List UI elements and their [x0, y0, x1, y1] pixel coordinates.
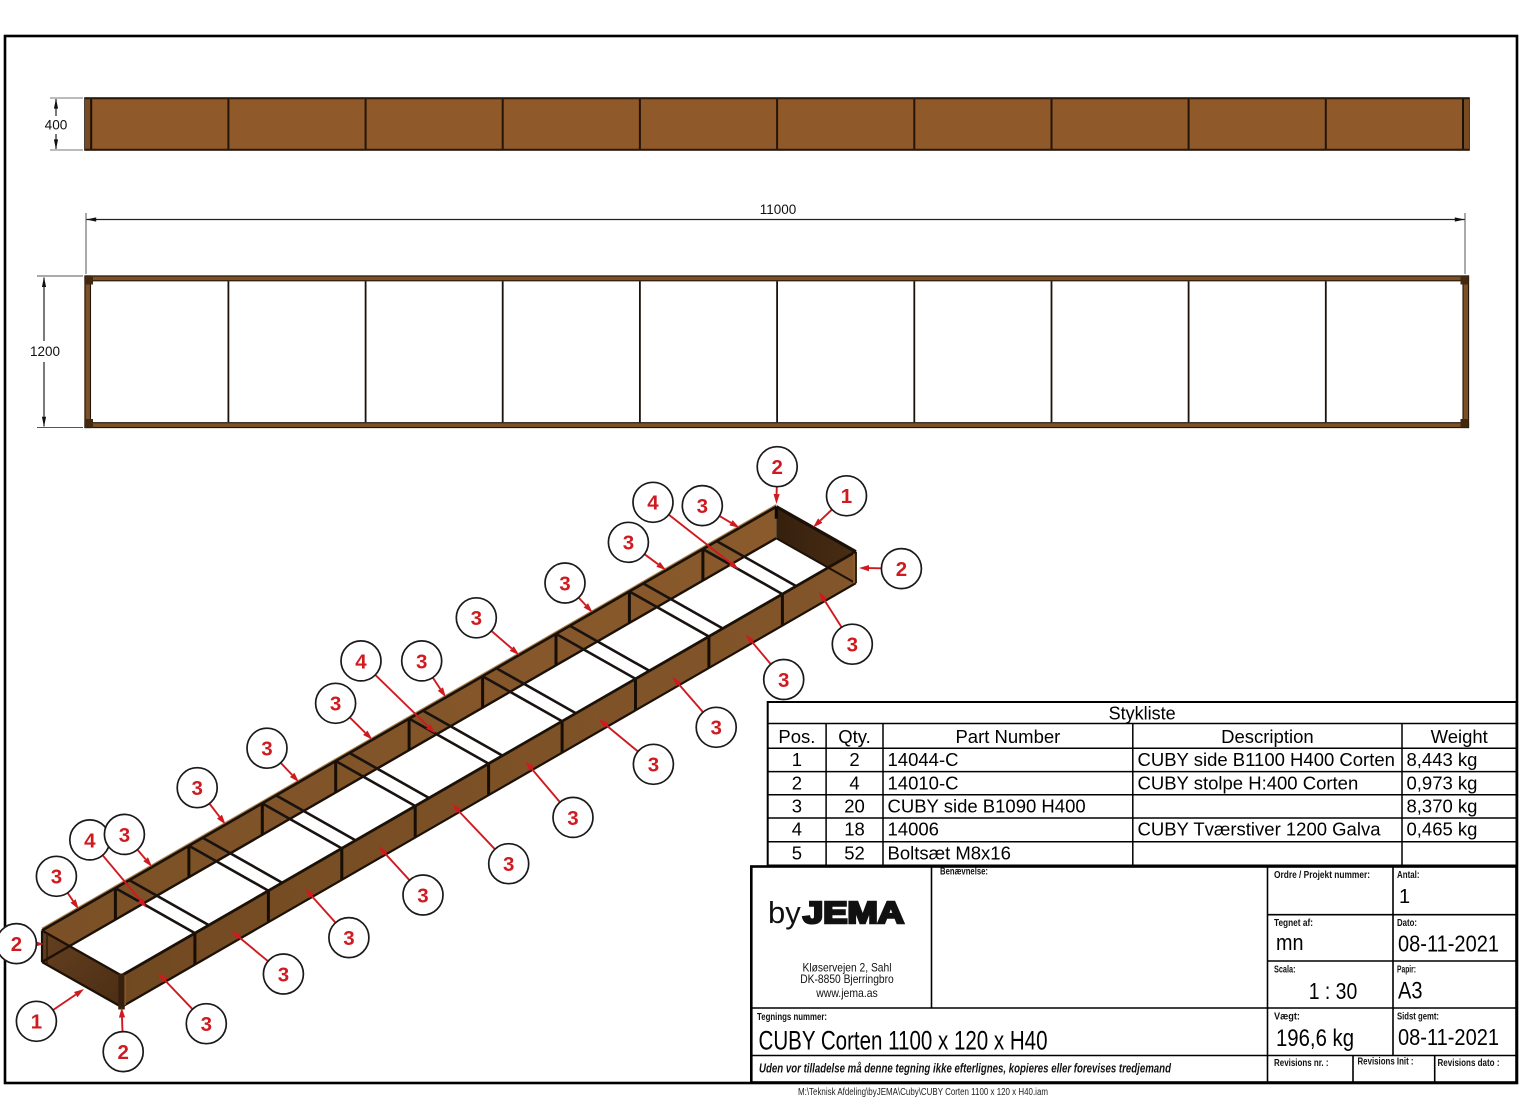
svg-text:3: 3 — [778, 669, 789, 692]
svg-text:3: 3 — [51, 866, 62, 889]
svg-text:3: 3 — [343, 927, 354, 950]
svg-text:3: 3 — [278, 963, 289, 986]
svg-text:CUBY Tværstiver 1200 Galva: CUBY Tværstiver 1200 Galva — [1138, 819, 1382, 840]
svg-text:Dato:: Dato: — [1397, 918, 1417, 929]
svg-text:1: 1 — [31, 1011, 42, 1034]
svg-text:Part Number: Part Number — [955, 726, 1060, 747]
svg-text:3: 3 — [559, 572, 570, 595]
svg-text:Ordre / Projekt nummer:: Ordre / Projekt nummer: — [1274, 870, 1370, 881]
svg-text:2: 2 — [11, 933, 22, 956]
svg-text:3: 3 — [416, 650, 427, 673]
svg-text:3: 3 — [710, 717, 721, 740]
svg-text:08-11-2021: 08-11-2021 — [1398, 931, 1499, 957]
svg-text:Qty.: Qty. — [838, 726, 871, 747]
svg-text:2: 2 — [896, 558, 907, 581]
svg-text:Revisions dato :: Revisions dato : — [1438, 1058, 1500, 1069]
svg-text:Vægt:: Vægt: — [1274, 1012, 1300, 1023]
svg-text:1: 1 — [1399, 886, 1410, 908]
svg-text:1: 1 — [792, 749, 802, 770]
svg-text:3: 3 — [119, 824, 130, 847]
svg-text:8,370 kg: 8,370 kg — [1407, 796, 1478, 817]
svg-text:2: 2 — [792, 772, 802, 793]
svg-text:5: 5 — [792, 843, 802, 864]
svg-text:0,973 kg: 0,973 kg — [1407, 772, 1478, 793]
svg-text:JEMA: JEMA — [803, 895, 904, 930]
svg-text:14006: 14006 — [888, 819, 939, 840]
svg-text:CUBY side B1100 H400 Corten: CUBY side B1100 H400 Corten — [1138, 749, 1395, 770]
svg-text:3: 3 — [261, 738, 272, 761]
svg-text:Uden vor tilladelse må denne t: Uden vor tilladelse må denne tegning ikk… — [759, 1061, 1172, 1076]
svg-text:Stykliste: Stykliste — [1109, 704, 1176, 724]
svg-text:1200: 1200 — [30, 344, 60, 360]
svg-text:Revisions Init :: Revisions Init : — [1358, 1057, 1414, 1068]
svg-text:20: 20 — [844, 796, 865, 817]
svg-text:CUBY side B1090 H400: CUBY side B1090 H400 — [888, 796, 1086, 817]
svg-text:4: 4 — [647, 492, 659, 515]
svg-text:Benævnelse:: Benævnelse: — [940, 867, 988, 878]
svg-text:2: 2 — [849, 749, 859, 770]
svg-text:3: 3 — [503, 853, 514, 876]
svg-text:3: 3 — [623, 532, 634, 555]
svg-text:4: 4 — [355, 650, 367, 673]
svg-text:A3: A3 — [1398, 978, 1423, 1005]
svg-text:Scala:: Scala: — [1274, 965, 1296, 976]
svg-text:CUBY stolpe H:400 Corten: CUBY stolpe H:400 Corten — [1138, 772, 1359, 793]
svg-text:3: 3 — [648, 754, 659, 777]
svg-text:3: 3 — [417, 884, 428, 907]
svg-text:4: 4 — [792, 819, 802, 840]
svg-text:by: by — [768, 895, 801, 930]
svg-text:DK-8850 Bjerringbro: DK-8850 Bjerringbro — [800, 972, 894, 986]
svg-text:3: 3 — [471, 607, 482, 630]
svg-text:3: 3 — [201, 1013, 212, 1036]
svg-text:08-11-2021: 08-11-2021 — [1398, 1024, 1499, 1050]
svg-text:Boltsæt M8x16: Boltsæt M8x16 — [888, 843, 1011, 864]
svg-text:3: 3 — [191, 777, 202, 800]
svg-text:0,465 kg: 0,465 kg — [1407, 819, 1478, 840]
svg-text:1: 1 — [841, 485, 852, 508]
svg-text:Tegnet af:: Tegnet af: — [1274, 918, 1313, 929]
svg-text:3: 3 — [697, 495, 708, 518]
svg-text:11000: 11000 — [760, 202, 797, 218]
svg-text:400: 400 — [45, 118, 68, 133]
svg-text:3: 3 — [330, 693, 341, 716]
svg-text:3: 3 — [792, 796, 802, 817]
svg-text:mn: mn — [1276, 930, 1304, 955]
svg-text:4: 4 — [849, 772, 859, 793]
svg-text:4: 4 — [84, 829, 96, 852]
svg-text:Description: Description — [1221, 726, 1314, 747]
svg-text:CUBY Corten 1100 x 120 x H40: CUBY Corten 1100 x 120 x H40 — [759, 1026, 1048, 1056]
svg-text:M:\Teknisk Afdeling\byJEMA\Cub: M:\Teknisk Afdeling\byJEMA\Cuby\CUBY Cor… — [798, 1087, 1048, 1098]
svg-text:3: 3 — [567, 807, 578, 830]
svg-text:18: 18 — [844, 819, 865, 840]
svg-text:Weight: Weight — [1431, 726, 1488, 747]
svg-text:Sidst gemt:: Sidst gemt: — [1397, 1012, 1439, 1023]
svg-text:14010-C: 14010-C — [888, 772, 959, 793]
svg-text:2: 2 — [117, 1041, 128, 1064]
svg-text:196,6 kg: 196,6 kg — [1276, 1025, 1354, 1052]
svg-text:Tegnings nummer:: Tegnings nummer: — [757, 1012, 827, 1023]
svg-text:Revisions nr. :: Revisions nr. : — [1274, 1058, 1329, 1069]
svg-text:3: 3 — [847, 634, 858, 657]
svg-text:2: 2 — [771, 456, 782, 479]
svg-text:1 : 30: 1 : 30 — [1309, 978, 1358, 1004]
svg-text:14044-C: 14044-C — [888, 749, 959, 770]
svg-text:Papir:: Papir: — [1397, 965, 1416, 976]
svg-text:Antal:: Antal: — [1397, 870, 1420, 881]
svg-text:www.jema.as: www.jema.as — [815, 986, 877, 1000]
svg-text:Pos.: Pos. — [778, 726, 815, 747]
svg-text:8,443 kg: 8,443 kg — [1407, 749, 1478, 770]
svg-text:52: 52 — [844, 843, 865, 864]
